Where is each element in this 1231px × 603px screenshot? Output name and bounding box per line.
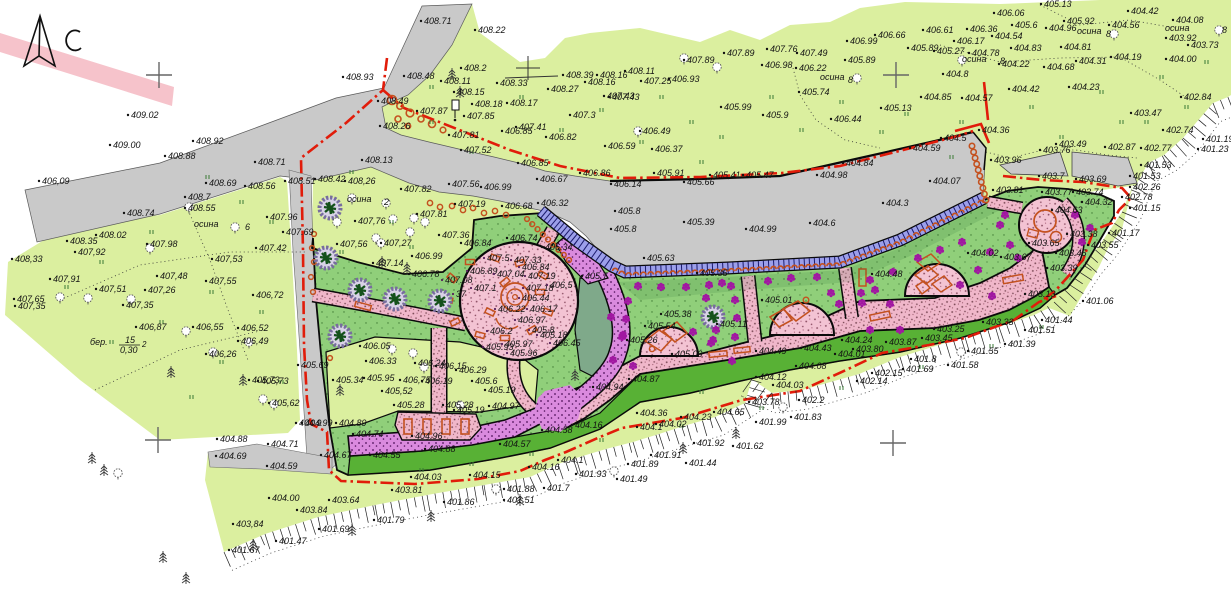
svg-text:408.33: 408.33: [500, 78, 528, 88]
svg-text:406.17: 406.17: [957, 36, 986, 46]
svg-text:402.26: 402.26: [1133, 182, 1161, 192]
svg-text:405.74: 405.74: [802, 87, 830, 97]
svg-text:403.47: 403.47: [1134, 108, 1163, 118]
svg-text:406.85: 406.85: [521, 158, 550, 168]
svg-text:404.68: 404.68: [1047, 62, 1075, 72]
svg-text:осина: осина: [962, 54, 986, 64]
svg-text:405.63: 405.63: [647, 253, 675, 263]
svg-text:405.28: 405.28: [446, 400, 474, 410]
svg-text:408.55: 408.55: [188, 203, 217, 213]
svg-text:401.49: 401.49: [620, 474, 648, 484]
svg-text:402.84: 402.84: [1184, 92, 1212, 102]
svg-text:408.22: 408.22: [478, 25, 506, 35]
svg-text:407.87: 407.87: [420, 106, 449, 116]
svg-text:407,65: 407,65: [17, 294, 46, 304]
svg-text:407.89: 407.89: [727, 48, 755, 58]
svg-text:403.87: 403.87: [889, 337, 918, 347]
svg-text:406.32: 406.32: [541, 198, 569, 208]
svg-text:404.01: 404.01: [838, 349, 866, 359]
svg-text:406.84: 406.84: [464, 238, 492, 248]
svg-text:406.37: 406.37: [655, 144, 684, 154]
svg-text:405.38: 405.38: [664, 309, 692, 319]
svg-text:404.57: 404.57: [965, 93, 994, 103]
svg-text:401.79: 401.79: [377, 515, 405, 525]
svg-text:407.56: 407.56: [452, 179, 480, 189]
svg-text:406,52: 406,52: [241, 323, 269, 333]
svg-text:404.65: 404.65: [717, 407, 746, 417]
svg-text:405.8: 405.8: [614, 224, 637, 234]
svg-text:407,26: 407,26: [148, 285, 176, 295]
svg-text:407.49: 407.49: [800, 48, 828, 58]
svg-text:407.1: 407.1: [474, 283, 497, 293]
svg-text:404.5: 404.5: [944, 133, 968, 143]
svg-text:408.42: 408.42: [318, 174, 346, 184]
svg-text:406.34: 406.34: [545, 242, 573, 252]
svg-text:401.88: 401.88: [507, 484, 535, 494]
svg-text:405.54: 405.54: [648, 321, 676, 331]
svg-text:406.5: 406.5: [550, 280, 574, 290]
svg-text:408.69: 408.69: [209, 178, 237, 188]
svg-text:404.87: 404.87: [632, 374, 661, 384]
svg-text:404.71: 404.71: [271, 439, 299, 449]
svg-text:407.04: 407.04: [497, 269, 525, 279]
svg-text:408,26: 408,26: [348, 176, 376, 186]
svg-text:404.99: 404.99: [305, 418, 333, 428]
svg-text:404.48: 404.48: [875, 269, 903, 279]
svg-text:404.00: 404.00: [272, 493, 300, 503]
svg-text:404.31: 404.31: [1079, 56, 1107, 66]
svg-text:406.22: 406.22: [498, 304, 526, 314]
svg-text:осина: осина: [1077, 26, 1101, 36]
svg-text:403.84: 403.84: [300, 505, 328, 515]
svg-text:408.16: 408.16: [600, 70, 628, 80]
svg-text:401.51: 401.51: [507, 495, 535, 505]
svg-text:403.13: 403.13: [1028, 289, 1056, 299]
svg-text:407,55: 407,55: [209, 276, 238, 286]
svg-text:404.1: 404.1: [640, 422, 663, 432]
svg-text:408,33: 408,33: [15, 254, 43, 264]
svg-text:407,76: 407,76: [358, 216, 386, 226]
svg-text:403.81: 403.81: [395, 485, 423, 495]
svg-text:403.74: 403.74: [1076, 187, 1104, 197]
svg-text:405.91: 405.91: [657, 168, 685, 178]
svg-text:406.36: 406.36: [970, 24, 998, 34]
svg-text:403,84: 403,84: [236, 519, 264, 529]
svg-text:407,56: 407,56: [340, 239, 368, 249]
svg-text:404.63: 404.63: [1055, 205, 1083, 215]
svg-text:404.15: 404.15: [473, 470, 502, 480]
svg-text:406.06: 406.06: [997, 8, 1025, 18]
svg-text:404.99: 404.99: [749, 224, 777, 234]
svg-text:404.1: 404.1: [561, 455, 584, 465]
svg-text:407.81: 407.81: [420, 209, 448, 219]
svg-text:408.15: 408.15: [457, 87, 486, 97]
svg-text:403.33: 403.33: [986, 317, 1014, 327]
svg-text:407.82: 407.82: [404, 184, 432, 194]
svg-text:407.89: 407.89: [687, 55, 715, 65]
svg-text:401.58: 401.58: [951, 360, 979, 370]
svg-text:406,72: 406,72: [256, 290, 284, 300]
svg-text:404.59: 404.59: [270, 461, 298, 471]
svg-text:401.51: 401.51: [1028, 325, 1056, 335]
svg-text:404.58: 404.58: [545, 425, 573, 435]
svg-text:404.85: 404.85: [924, 92, 953, 102]
svg-text:404.16: 404.16: [575, 420, 603, 430]
svg-text:404.8: 404.8: [946, 69, 969, 79]
svg-text:401.93: 401.93: [579, 469, 607, 479]
svg-text:407.43: 407.43: [612, 92, 640, 102]
svg-text:401.92: 401.92: [697, 438, 725, 448]
svg-text:408.02: 408.02: [99, 230, 127, 240]
svg-text:406.44: 406.44: [522, 293, 550, 303]
svg-text:407,48: 407,48: [160, 271, 188, 281]
svg-text:406,49: 406,49: [241, 336, 269, 346]
svg-text:401.47: 401.47: [279, 536, 308, 546]
svg-text:осина: осина: [347, 194, 371, 204]
svg-text:408.88: 408.88: [168, 151, 196, 161]
svg-text:405.7: 405.7: [585, 271, 609, 281]
svg-text:404.42: 404.42: [1131, 6, 1159, 16]
svg-text:405.35: 405.35: [700, 268, 729, 278]
svg-text:403.64: 403.64: [332, 495, 360, 505]
svg-text:408.51: 408.51: [288, 176, 316, 186]
svg-text:408.2: 408.2: [464, 63, 487, 73]
svg-text:404.03: 404.03: [776, 380, 804, 390]
svg-text:404.81: 404.81: [1064, 42, 1092, 52]
svg-text:405,62: 405,62: [272, 398, 300, 408]
svg-text:405.69: 405.69: [301, 360, 329, 370]
svg-text:404.59: 404.59: [913, 143, 941, 153]
svg-text:406.74: 406.74: [510, 233, 538, 243]
svg-text:404.98: 404.98: [820, 170, 848, 180]
svg-text:407,27: 407,27: [384, 238, 413, 248]
svg-text:404.57: 404.57: [503, 439, 532, 449]
svg-text:406,87: 406,87: [139, 322, 168, 332]
svg-text:404.94: 404.94: [596, 382, 624, 392]
svg-text:408.18: 408.18: [475, 99, 503, 109]
svg-text:403.7: 403.7: [1042, 171, 1066, 181]
svg-text:405.95: 405.95: [367, 373, 396, 383]
svg-text:407.69: 407.69: [286, 227, 314, 237]
svg-text:405.66: 405.66: [687, 177, 715, 187]
svg-text:407,35: 407,35: [126, 300, 155, 310]
svg-text:401.39: 401.39: [1008, 339, 1036, 349]
svg-text:404.36: 404.36: [982, 125, 1010, 135]
svg-text:404.83: 404.83: [1014, 43, 1042, 53]
svg-text:404.56: 404.56: [1112, 20, 1140, 30]
svg-text:408.71: 408.71: [424, 16, 452, 26]
svg-text:406,09: 406,09: [42, 176, 70, 186]
svg-text:8: 8: [848, 75, 853, 85]
svg-text:401.69: 401.69: [906, 364, 934, 374]
svg-text:405.19: 405.19: [488, 385, 516, 395]
svg-text:404.08: 404.08: [799, 361, 827, 371]
svg-text:409.00: 409.00: [113, 140, 141, 150]
svg-text:404.00: 404.00: [1169, 54, 1197, 64]
svg-text:406.93: 406.93: [672, 74, 700, 84]
svg-text:407.52: 407.52: [464, 145, 492, 155]
svg-text:405.39: 405.39: [687, 217, 715, 227]
svg-text:405.26: 405.26: [630, 335, 658, 345]
svg-text:406.44: 406.44: [834, 114, 862, 124]
svg-text:406.14: 406.14: [614, 179, 642, 189]
svg-text:408.93: 408.93: [346, 72, 374, 82]
svg-text:406.05: 406.05: [363, 341, 392, 351]
svg-text:404.88: 404.88: [220, 434, 248, 444]
svg-text:407,92: 407,92: [78, 247, 106, 257]
svg-text:407.76: 407.76: [770, 44, 798, 54]
svg-text:408.11: 408.11: [628, 66, 655, 76]
svg-text:401.23: 401.23: [1201, 144, 1229, 154]
svg-text:401.7: 401.7: [547, 483, 571, 493]
svg-text:407.3: 407.3: [573, 110, 596, 120]
svg-text:403.55: 403.55: [1091, 240, 1120, 250]
svg-text:405.13: 405.13: [1044, 0, 1072, 9]
svg-text:405,52: 405,52: [385, 386, 413, 396]
svg-text:406.86: 406.86: [583, 168, 611, 178]
svg-text:404.02: 404.02: [971, 248, 999, 258]
svg-text:406.59: 406.59: [608, 141, 636, 151]
svg-text:402.74: 402.74: [1166, 125, 1194, 135]
svg-text:405.47: 405.47: [746, 170, 775, 180]
svg-text:404.88: 404.88: [428, 444, 456, 454]
svg-text:408.13: 408.13: [365, 155, 393, 165]
svg-text:403.49: 403.49: [1059, 139, 1087, 149]
svg-text:401.67: 401.67: [232, 545, 261, 555]
svg-text:404.6: 404.6: [813, 218, 836, 228]
svg-text:406.45: 406.45: [553, 338, 582, 348]
svg-text:406.67: 406.67: [540, 174, 569, 184]
svg-text:407.85: 407.85: [467, 111, 496, 121]
svg-text:2: 2: [141, 340, 147, 349]
svg-text:осина: осина: [1165, 23, 1189, 33]
svg-text:401.86: 401.86: [447, 497, 475, 507]
svg-text:401.8: 401.8: [914, 354, 937, 364]
svg-text:403.69: 403.69: [1079, 174, 1107, 184]
svg-text:405.13: 405.13: [884, 103, 912, 113]
svg-text:406.49: 406.49: [643, 126, 671, 136]
svg-text:404.49: 404.49: [759, 346, 787, 356]
svg-text:407,51: 407,51: [99, 284, 127, 294]
svg-text:408.17: 408.17: [510, 98, 539, 108]
svg-text:6: 6: [245, 222, 250, 232]
svg-text:405.9: 405.9: [766, 110, 789, 120]
svg-text:401.06: 401.06: [1086, 296, 1114, 306]
svg-text:408.49: 408.49: [381, 96, 409, 106]
svg-text:406,24: 406,24: [418, 358, 446, 368]
svg-text:407,53: 407,53: [215, 254, 243, 264]
svg-text:407.19: 407.19: [458, 199, 486, 209]
svg-text:403.25: 403.25: [937, 324, 966, 334]
svg-text:8: 8: [1222, 25, 1227, 35]
svg-text:0,30: 0,30: [120, 345, 138, 355]
svg-text:406.99: 406.99: [484, 182, 512, 192]
svg-text:404.24: 404.24: [845, 335, 873, 345]
svg-text:406,26: 406,26: [209, 349, 237, 359]
svg-text:403.38: 403.38: [1070, 229, 1098, 239]
svg-text:402.77: 402.77: [1144, 143, 1173, 153]
svg-text:404.36: 404.36: [640, 408, 668, 418]
svg-text:404.54: 404.54: [995, 31, 1023, 41]
svg-text:404.3: 404.3: [886, 198, 909, 208]
svg-text:401.17: 401.17: [1112, 228, 1141, 238]
svg-text:406.19: 406.19: [425, 376, 453, 386]
svg-text:404.03: 404.03: [414, 472, 442, 482]
svg-text:401.44: 401.44: [689, 458, 717, 468]
svg-text:407,91: 407,91: [53, 274, 81, 284]
svg-text:401.62: 401.62: [736, 441, 764, 451]
svg-text:407.96: 407.96: [270, 212, 298, 222]
svg-text:402.87: 402.87: [1108, 142, 1137, 152]
svg-text:2: 2: [383, 197, 389, 207]
svg-text:406.85: 406.85: [505, 126, 534, 136]
svg-text:403.67: 403.67: [1004, 252, 1033, 262]
svg-text:8: 8: [1000, 56, 1005, 66]
svg-text:405,73: 405,73: [261, 376, 289, 386]
svg-text:407.42: 407.42: [259, 243, 287, 253]
svg-text:404.96: 404.96: [1049, 23, 1077, 33]
svg-text:408.26: 408.26: [383, 121, 411, 131]
svg-text:404.84: 404.84: [846, 158, 874, 168]
svg-text:401.99: 401.99: [759, 417, 787, 427]
svg-text:405,41: 405,41: [713, 170, 741, 180]
svg-text:407.14: 407.14: [376, 258, 404, 268]
svg-text:404.02: 404.02: [659, 419, 687, 429]
svg-text:405.11: 405.11: [720, 319, 747, 329]
svg-text:408.35: 408.35: [70, 236, 99, 246]
svg-text:осина: осина: [820, 72, 844, 82]
svg-text:404.55: 404.55: [373, 450, 402, 460]
svg-text:406.98: 406.98: [765, 60, 793, 70]
svg-text:408.7: 408.7: [188, 192, 212, 202]
svg-text:405.99: 405.99: [724, 102, 752, 112]
svg-text:404.23: 404.23: [1072, 82, 1100, 92]
svg-text:407.5: 407.5: [487, 253, 511, 263]
svg-text:401.19: 401.19: [1206, 134, 1231, 144]
svg-text:408.11: 408.11: [444, 76, 471, 86]
svg-text:404.96: 404.96: [415, 431, 443, 441]
svg-text:бер.: бер.: [90, 337, 108, 347]
svg-text:407.08: 407.08: [445, 275, 473, 285]
svg-text:406.99: 406.99: [850, 36, 878, 46]
svg-text:осина: осина: [194, 219, 218, 229]
svg-text:401.53: 401.53: [1133, 171, 1161, 181]
svg-text:408.27: 408.27: [551, 84, 580, 94]
svg-text:401.89: 401.89: [631, 459, 659, 469]
svg-text:406.66: 406.66: [878, 30, 906, 40]
svg-text:406.2: 406.2: [490, 326, 513, 336]
svg-text:404.43: 404.43: [804, 343, 832, 353]
svg-text:403.45: 403.45: [1059, 248, 1088, 258]
svg-text:403.73: 403.73: [1191, 40, 1219, 50]
svg-text:406.17: 406.17: [530, 304, 559, 314]
svg-text:405.6: 405.6: [1015, 20, 1038, 30]
svg-text:401.15: 401.15: [1133, 203, 1162, 213]
svg-text:404.07: 404.07: [933, 176, 962, 186]
svg-text:408.71: 408.71: [258, 157, 286, 167]
svg-text:403.39: 403.39: [1050, 263, 1078, 273]
svg-text:404.19: 404.19: [1114, 52, 1142, 62]
svg-text:401.83: 401.83: [794, 412, 822, 422]
svg-text:403.45: 403.45: [925, 333, 954, 343]
svg-text:403.65: 403.65: [1032, 238, 1061, 248]
svg-text:404.97: 404.97: [492, 401, 521, 411]
svg-text:405.8: 405.8: [618, 206, 641, 216]
svg-text:407.81: 407.81: [452, 130, 480, 140]
svg-text:404.22: 404.22: [1002, 59, 1030, 69]
svg-text:401.44: 401.44: [1045, 315, 1073, 325]
svg-text:404.32: 404.32: [1085, 197, 1113, 207]
svg-text:403.78: 403.78: [752, 397, 780, 407]
svg-text:404.67: 404.67: [324, 450, 353, 460]
svg-text:405.01: 405.01: [765, 295, 793, 305]
svg-text:404.89: 404.89: [339, 418, 367, 428]
svg-text:406.61: 406.61: [926, 25, 954, 35]
svg-text:407.25: 407.25: [644, 76, 673, 86]
svg-text:403.81: 403.81: [996, 185, 1024, 195]
svg-text:404.74: 404.74: [356, 429, 384, 439]
svg-text:404.23: 404.23: [684, 412, 712, 422]
svg-text:406.99: 406.99: [415, 251, 443, 261]
svg-text:15: 15: [125, 335, 136, 345]
svg-text:402.2: 402.2: [802, 395, 825, 405]
svg-text:401.55: 401.55: [971, 346, 1000, 356]
svg-text:402.78: 402.78: [1125, 192, 1153, 202]
svg-text:409.02: 409.02: [131, 110, 159, 120]
svg-text:37: 37: [456, 289, 467, 299]
svg-text:403.96: 403.96: [994, 155, 1022, 165]
svg-text:405.89: 405.89: [848, 55, 876, 65]
svg-text:408.74: 408.74: [127, 208, 155, 218]
svg-text:404.42: 404.42: [1012, 84, 1040, 94]
svg-text:403.77: 403.77: [1045, 187, 1074, 197]
svg-text:404.16: 404.16: [532, 462, 560, 472]
svg-text:408.56: 408.56: [248, 181, 276, 191]
svg-text:408.48: 408.48: [407, 71, 435, 81]
svg-text:405.28: 405.28: [397, 400, 425, 410]
svg-text:405.09: 405.09: [675, 349, 703, 359]
svg-text:405.34: 405.34: [336, 375, 364, 385]
svg-text:401.53: 401.53: [1144, 160, 1172, 170]
svg-text:405.96: 405.96: [510, 348, 538, 358]
svg-text:402.14: 402.14: [860, 376, 888, 386]
svg-text:8: 8: [1106, 29, 1111, 39]
svg-text:406.78: 406.78: [412, 269, 440, 279]
svg-text:408.92: 408.92: [196, 136, 224, 146]
svg-text:406,55: 406,55: [196, 322, 225, 332]
svg-text:406.33: 406.33: [369, 356, 397, 366]
svg-text:407.98: 407.98: [150, 239, 178, 249]
svg-text:406.97: 406.97: [518, 315, 547, 325]
svg-text:404.69: 404.69: [219, 451, 247, 461]
svg-text:406.82: 406.82: [549, 132, 577, 142]
svg-text:401.69: 401.69: [322, 524, 350, 534]
svg-text:406.68: 406.68: [505, 201, 533, 211]
